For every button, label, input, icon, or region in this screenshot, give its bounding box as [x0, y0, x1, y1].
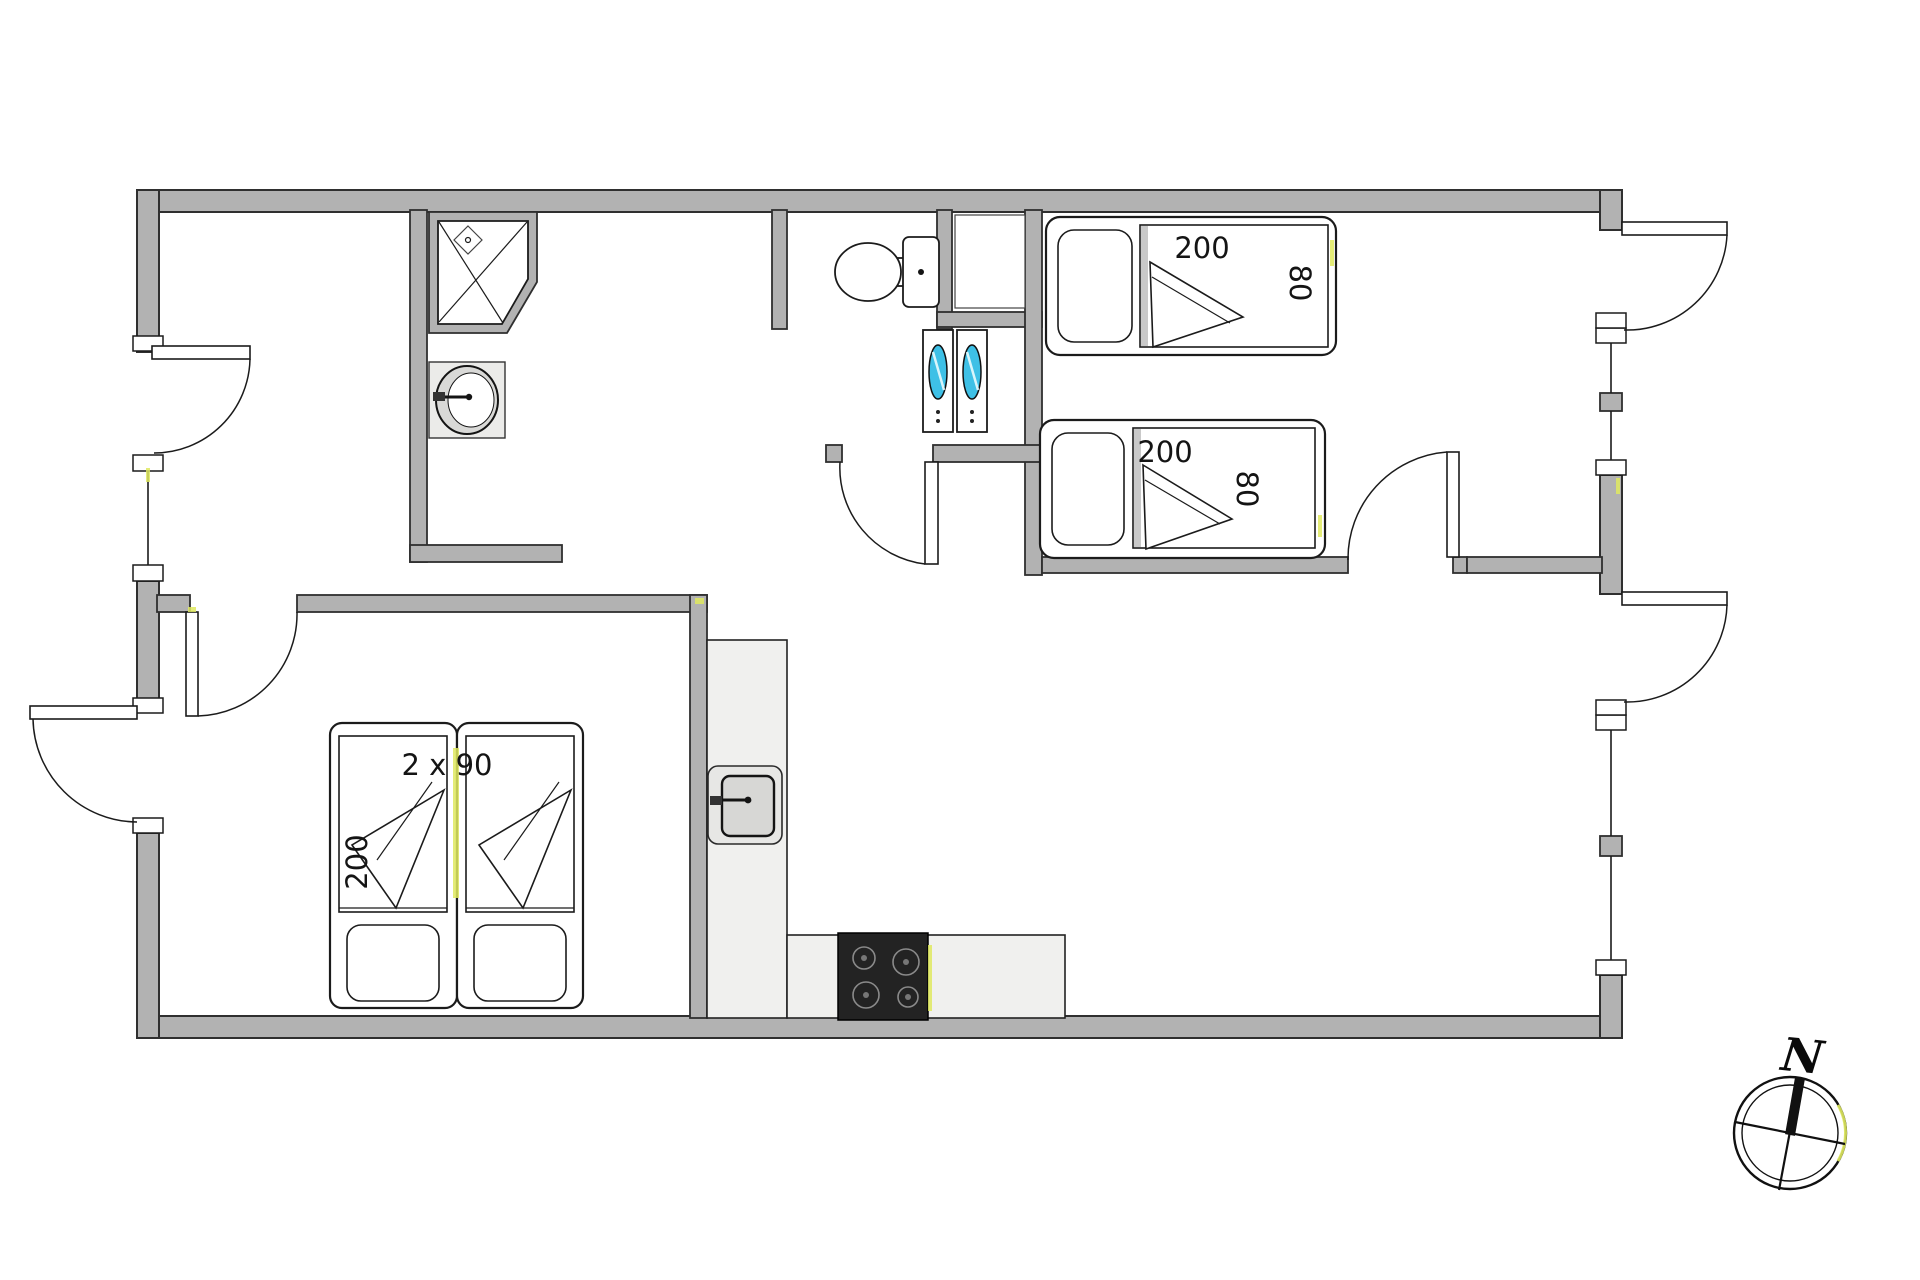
door-frame-cap	[1596, 313, 1626, 328]
toilet-bowl	[835, 243, 901, 301]
window-frame-cap	[133, 565, 163, 581]
wall-east-seg3	[1600, 975, 1622, 1038]
door-leaf	[152, 346, 250, 359]
door-swing-arc	[33, 719, 137, 822]
toilet-flush-dot	[918, 269, 924, 275]
burner-center	[905, 994, 911, 1000]
wall-bedroom-right-south-post	[1453, 557, 1467, 573]
sink-basin	[722, 776, 774, 836]
burner-center	[903, 959, 909, 965]
door-leaf	[1622, 222, 1727, 235]
floor-plan-drawing: 200 80 200 80 2 x 90 200	[0, 0, 1920, 1280]
entry-door-west	[133, 336, 250, 453]
laundry-knob	[970, 410, 974, 414]
wall-west-seg2	[137, 581, 159, 712]
bedroom-right-beds: 200 80 200 80	[1040, 217, 1336, 558]
bed-width-label: 80	[1283, 265, 1317, 302]
bed-pillow	[1058, 230, 1132, 342]
wall-bathroom-west	[410, 210, 427, 562]
burner-center	[861, 955, 867, 961]
window-frame-cap	[1596, 960, 1626, 975]
kitchen	[707, 640, 1065, 1020]
wall-east-seg1	[1600, 190, 1622, 230]
door-leaf	[186, 612, 198, 716]
wall-bedroom-right-south-b	[1467, 557, 1602, 573]
compass-needle-north	[1790, 1078, 1800, 1135]
highlight-mark	[188, 607, 196, 612]
faucet-tip	[466, 394, 472, 400]
washer-dryer	[923, 330, 987, 432]
burner-center	[863, 992, 869, 998]
compass-rose: N	[1734, 1027, 1846, 1190]
bed-pillow	[1052, 433, 1124, 545]
bathroom	[429, 212, 1025, 438]
bed-head-strip	[1141, 226, 1148, 346]
door-swing-arc	[198, 612, 297, 716]
door-swing-arc	[840, 462, 925, 564]
wall-bedroom-left-north-stub	[157, 595, 190, 612]
laundry-knob	[936, 410, 940, 414]
hall-door	[840, 462, 938, 564]
window-east-lower	[1596, 715, 1626, 975]
laundry-knob	[936, 419, 940, 423]
bed-pillow	[347, 925, 439, 1001]
bed-width-label: 80	[1230, 471, 1264, 508]
wall-hall-post	[826, 445, 842, 462]
washbasin-bowl-inner	[448, 373, 494, 427]
window-frame-cap	[1596, 328, 1626, 343]
wall-west-seg3	[137, 833, 159, 1038]
exterior-door-east-lower	[1596, 592, 1727, 715]
highlight-mark	[928, 945, 932, 1011]
bed-right-bottom: 200 80	[1040, 420, 1325, 558]
window-mid-post	[1600, 836, 1622, 856]
compass-highlight-arc	[1838, 1105, 1846, 1161]
toilet	[835, 237, 939, 307]
door-swing-arc	[1624, 605, 1727, 702]
wall-bedroom-right-south-a	[1042, 557, 1348, 573]
door-swing-arc	[1348, 452, 1447, 560]
wall-north	[137, 190, 1622, 212]
door-leaf	[1622, 592, 1727, 605]
door-swing-arc	[1624, 235, 1727, 330]
stove-top	[838, 933, 928, 1020]
faucet-tip	[745, 797, 752, 804]
exterior-door-east-upper	[1596, 222, 1727, 330]
faucet-base	[433, 392, 445, 401]
doors	[30, 222, 1727, 833]
highlight-mark	[695, 598, 704, 604]
door-swing-arc	[154, 359, 250, 453]
door-leaf	[925, 462, 938, 564]
door-leaf	[30, 706, 137, 719]
wall-bathroom-east	[772, 210, 787, 329]
bedroom-left-door	[186, 612, 297, 716]
faucet-base	[710, 796, 722, 805]
door-leaf	[1447, 452, 1459, 557]
wall-bathroom-south	[410, 545, 562, 562]
highlight-mark	[146, 468, 150, 482]
floor-plan-page: 200 80 200 80 2 x 90 200	[0, 0, 1920, 1280]
closet-niche	[955, 215, 1025, 308]
bed-length-label: 200	[340, 834, 374, 889]
bed-length-label: 200	[1137, 435, 1192, 469]
door-frame-cap	[1596, 700, 1626, 715]
highlight-mark	[1616, 478, 1620, 494]
window-mid-post	[1600, 393, 1622, 411]
corner-shower	[429, 212, 537, 333]
bed-pillow	[474, 925, 566, 1001]
window-east-upper	[1596, 328, 1626, 475]
beds-size-label: 2 x 90	[402, 748, 493, 782]
bed-length-label: 200	[1174, 231, 1229, 265]
window-frame-cap	[1596, 715, 1626, 730]
window-frame-cap	[1596, 460, 1626, 475]
bed-right-top: 200 80	[1046, 217, 1336, 355]
wall-kitchen-west	[690, 595, 707, 1018]
laundry-knob	[970, 419, 974, 423]
compass-north-label: N	[1777, 1027, 1828, 1086]
wall-bedroom-left-north	[297, 595, 707, 612]
wall-hall-south	[933, 445, 1042, 462]
washbasin	[429, 362, 505, 438]
wall-west-seg1	[137, 190, 159, 352]
bedroom-left-beds: 2 x 90 200	[330, 723, 583, 1008]
bedroom-right-door	[1348, 452, 1459, 560]
stove	[838, 933, 928, 1020]
highlight-mark	[1330, 240, 1334, 266]
kitchen-sink	[708, 766, 782, 844]
exterior-door-west-lower	[30, 698, 163, 833]
highlight-mark	[1318, 515, 1322, 537]
door-frame-cap	[133, 818, 163, 833]
